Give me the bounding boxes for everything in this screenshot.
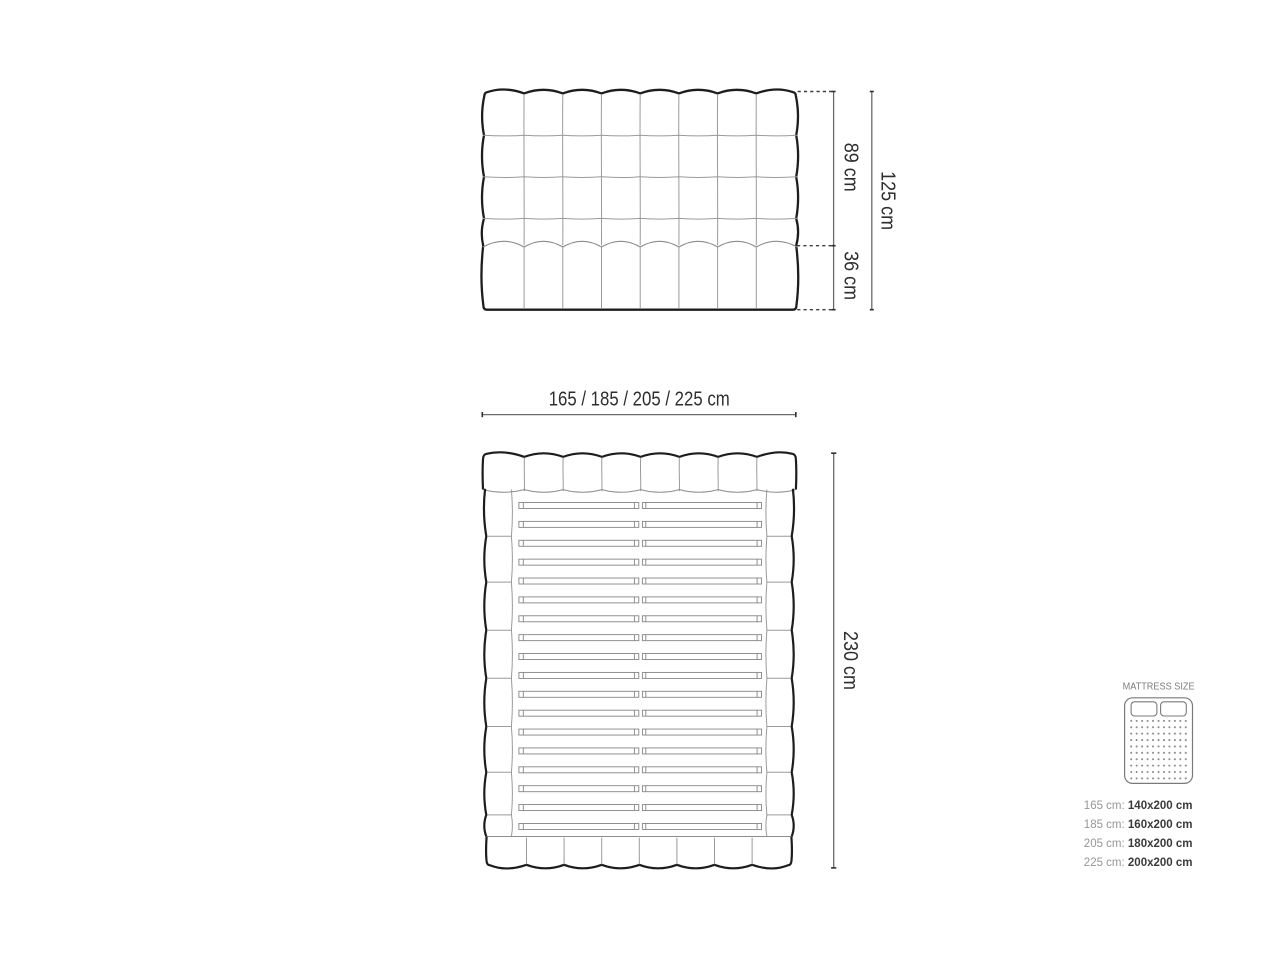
svg-text:205 cm: 180x200 cm: 205 cm: 180x200 cm — [1084, 838, 1193, 850]
svg-text:165 cm: 140x200 cm: 165 cm: 140x200 cm — [1084, 800, 1193, 812]
svg-text:230 cm: 230 cm — [839, 631, 861, 690]
svg-text:36 cm: 36 cm — [839, 251, 861, 300]
svg-text:89 cm: 89 cm — [839, 143, 861, 192]
svg-text:165 / 185 / 205 / 225 cm: 165 / 185 / 205 / 225 cm — [549, 388, 730, 410]
svg-text:225 cm: 200x200 cm: 225 cm: 200x200 cm — [1084, 857, 1193, 869]
svg-text:185 cm: 160x200 cm: 185 cm: 160x200 cm — [1084, 819, 1193, 831]
svg-text:MATTRESS SIZE: MATTRESS SIZE — [1123, 682, 1195, 693]
svg-text:125 cm: 125 cm — [876, 171, 898, 230]
